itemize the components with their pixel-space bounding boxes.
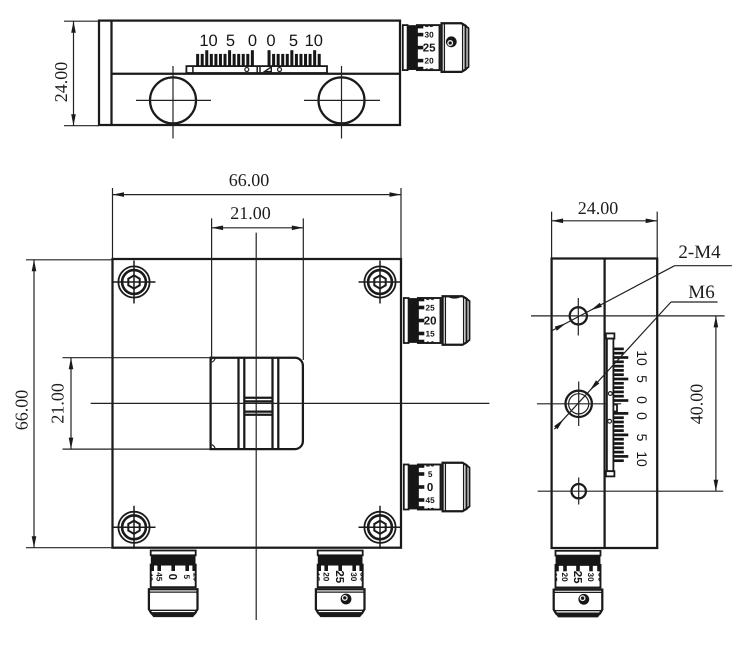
svg-text:25: 25: [426, 303, 436, 312]
svg-text:5: 5: [289, 32, 298, 50]
svg-text:0: 0: [634, 396, 650, 404]
svg-text:20: 20: [424, 316, 437, 328]
svg-text:66.00: 66.00: [229, 170, 270, 190]
svg-text:30: 30: [586, 573, 595, 583]
svg-text:0: 0: [166, 574, 178, 580]
svg-text:0: 0: [266, 32, 275, 50]
svg-text:10: 10: [199, 32, 217, 50]
svg-text:M6: M6: [688, 282, 714, 303]
svg-text:45: 45: [426, 496, 436, 505]
svg-text:20: 20: [425, 57, 435, 66]
svg-text:40.00: 40.00: [687, 384, 707, 425]
svg-text:5: 5: [182, 575, 191, 580]
svg-text:5: 5: [634, 434, 650, 442]
svg-text:20: 20: [321, 572, 330, 582]
svg-text:24.00: 24.00: [51, 62, 71, 103]
svg-text:0: 0: [248, 32, 257, 50]
svg-text:0: 0: [634, 412, 650, 420]
svg-text:25: 25: [571, 571, 583, 584]
svg-text:10: 10: [634, 350, 650, 366]
svg-text:0: 0: [427, 482, 433, 494]
svg-text:5: 5: [634, 375, 650, 383]
svg-text:30: 30: [349, 572, 358, 582]
svg-text:5: 5: [226, 32, 235, 50]
svg-text:66.00: 66.00: [12, 390, 32, 431]
svg-text:2-M4: 2-M4: [678, 242, 721, 263]
svg-text:20: 20: [560, 573, 569, 583]
svg-text:10: 10: [634, 451, 650, 467]
svg-text:25: 25: [333, 570, 345, 583]
svg-text:5: 5: [428, 470, 433, 479]
svg-text:45: 45: [154, 572, 163, 582]
svg-text:15: 15: [426, 329, 436, 338]
svg-text:21.00: 21.00: [230, 203, 271, 223]
svg-text:30: 30: [425, 31, 435, 40]
svg-text:25: 25: [423, 43, 436, 55]
svg-text:10: 10: [305, 32, 323, 50]
svg-text:24.00: 24.00: [578, 198, 619, 218]
svg-text:21.00: 21.00: [48, 383, 68, 424]
